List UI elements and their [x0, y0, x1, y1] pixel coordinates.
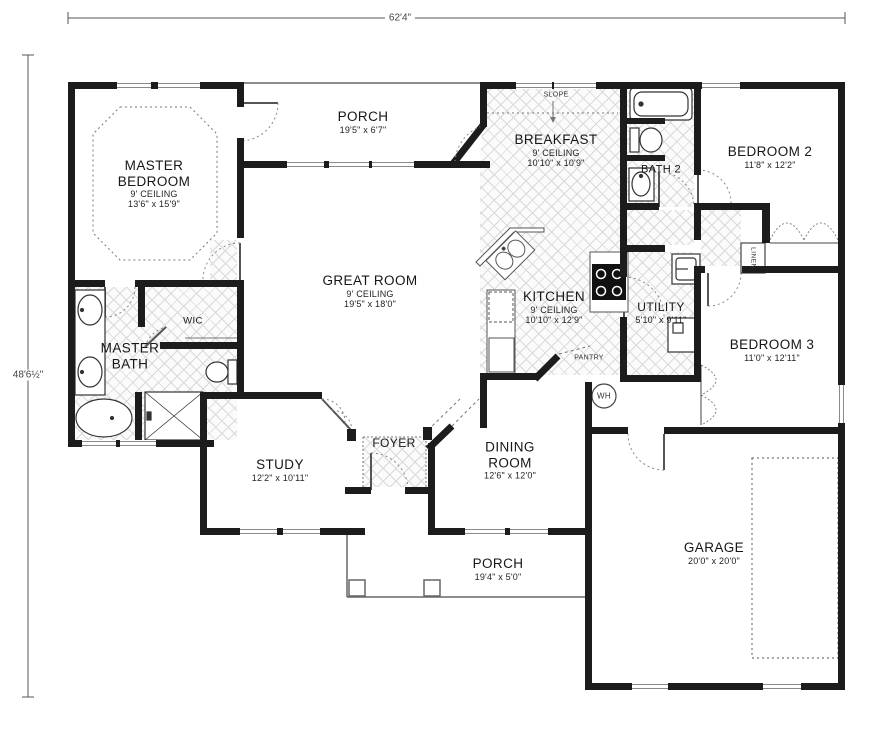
window [283, 528, 320, 535]
window [158, 82, 200, 89]
room-dims: 19'5" x 6'7" [303, 125, 423, 135]
wall-segment [135, 392, 142, 447]
room-dims: 11'8" x 12'2" [705, 160, 835, 170]
slope-line [487, 101, 618, 123]
room-label-great-room: GREAT ROOM 9' CEILING 19'5" x 18'0" [295, 273, 445, 309]
room-label-foyer: FOYER [364, 437, 424, 451]
window [329, 161, 369, 168]
wall-segment [620, 89, 627, 210]
window [554, 82, 596, 89]
window [372, 161, 414, 168]
room-label-master-bath: MASTER BATH [90, 340, 170, 371]
bath2-toilet [630, 128, 662, 152]
room-label-garage: GARAGE 20'0" x 20'0" [654, 540, 774, 566]
room-name: BEDROOM 2 [705, 144, 835, 160]
room-dims: 19'4" x 5'0" [438, 572, 558, 582]
overall-height-dimension: 48'6½" [9, 370, 47, 381]
room-label-bedroom3: BEDROOM 3 11'0" x 12'11" [707, 337, 837, 363]
wall-segment [620, 317, 627, 382]
window [632, 683, 668, 690]
room-ceiling: 9' CEILING [99, 189, 209, 199]
wh-label: WH [597, 392, 611, 401]
wall-segment [694, 85, 701, 175]
wall-segment [627, 118, 665, 124]
window [510, 528, 548, 535]
wall-segment [237, 168, 244, 238]
window [702, 82, 740, 89]
room-label-study: STUDY 12'2" x 10'11" [225, 457, 335, 483]
wall-segment [200, 392, 207, 535]
room-name: UTILITY [616, 301, 706, 315]
angled-openings [322, 346, 590, 430]
window [465, 528, 505, 535]
room-label-breakfast: BREAKFAST 9' CEILING 10'10" x 10'9" [496, 132, 616, 168]
room-name: DINING ROOM [465, 439, 555, 470]
linen-label: LINEN [750, 247, 757, 269]
room-dims: 12'6" x 12'0" [465, 470, 555, 480]
room-name: KITCHEN [499, 289, 609, 305]
window [82, 440, 116, 447]
room-name: BATH 2 [626, 164, 696, 177]
wall-segment [627, 203, 659, 210]
wall-segment [694, 210, 701, 240]
wall-segment [698, 427, 845, 434]
wall-segment [237, 82, 244, 107]
wall-segment [138, 287, 145, 327]
room-dims: 10'10" x 12'9" [499, 315, 609, 325]
wall-segment [620, 210, 627, 277]
room-dims: 10'10" x 10'9" [496, 158, 616, 168]
master-toilet [206, 360, 237, 384]
wall-segment [694, 203, 770, 210]
wall-segment [480, 373, 487, 428]
wall-segment [620, 375, 701, 382]
room-name: WIC [168, 317, 218, 328]
slope-label: SLOPE [544, 92, 569, 99]
room-label-porch-bottom: PORCH 19'4" x 5'0" [438, 556, 558, 582]
room-label-bath2: BATH 2 [626, 164, 696, 177]
wall-segment [347, 429, 356, 441]
wall-segment [68, 280, 105, 287]
wall-segment [742, 266, 845, 273]
window [120, 440, 156, 447]
room-label-porch-top: PORCH 19'5" x 6'7" [303, 109, 423, 135]
wall-segment [585, 683, 845, 690]
room-dims: 19'5" x 18'0" [295, 299, 445, 309]
window [287, 161, 324, 168]
wall-segment [423, 427, 432, 440]
room-ceiling: 9' CEILING [499, 304, 609, 314]
wall-segment [620, 245, 665, 252]
room-name: GARAGE [654, 540, 774, 556]
window [117, 82, 151, 89]
bifold-doors [701, 223, 838, 425]
room-label-wic: WIC [168, 317, 218, 328]
window [240, 528, 277, 535]
wall-segment [160, 342, 238, 349]
master-shower [145, 392, 203, 440]
wall-segment [345, 487, 371, 494]
room-label-dining: DINING ROOM 12'6" x 12'0" [465, 439, 555, 480]
wall-segment [405, 487, 432, 494]
room-name: STUDY [225, 457, 335, 473]
master-bathtub [76, 399, 132, 437]
pantry-label: PANTRY [574, 355, 604, 362]
room-name: MASTER BATH [90, 340, 170, 371]
room-dims: 20'0" x 20'0" [654, 556, 774, 566]
room-name: GREAT ROOM [295, 273, 445, 289]
room-name: PORCH [303, 109, 423, 125]
window [763, 683, 801, 690]
wall-segment [585, 382, 592, 690]
room-name: BEDROOM 3 [707, 337, 837, 353]
room-dims: 12'2" x 10'11" [225, 473, 335, 483]
room-dims: 11'0" x 12'11" [707, 353, 837, 363]
window [838, 385, 845, 423]
room-label-kitchen: KITCHEN 9' CEILING 10'10" x 12'9" [499, 289, 609, 325]
window [516, 82, 552, 89]
room-name: MASTER BEDROOM [99, 158, 209, 189]
room-name: FOYER [364, 437, 424, 451]
wall-segment [694, 266, 705, 273]
plan-lineart [0, 0, 874, 750]
room-ceiling: 9' CEILING [496, 147, 616, 157]
diagonal-walls [428, 124, 558, 449]
wall-segment [68, 82, 244, 89]
room-ceiling: 9' CEILING [295, 288, 445, 298]
room-dims: 5'10" x 9'11" [616, 315, 706, 325]
wall-segment [762, 203, 770, 243]
room-dims: 13'6" x 15'9" [99, 200, 209, 210]
bath2-bathtub [630, 88, 692, 120]
kitchen-corner-counter [476, 228, 544, 280]
floor-plan: MASTER BEDROOM 9' CEILING 13'6" x 15'9" … [0, 0, 874, 750]
wall-segment [480, 82, 487, 127]
room-label-utility: UTILITY 5'10" x 9'11" [616, 301, 706, 325]
wall-segment [592, 427, 628, 434]
wall-segment [627, 155, 665, 161]
wall-segment [68, 82, 75, 447]
wall-segment [135, 280, 244, 287]
room-label-master-bedroom: MASTER BEDROOM 9' CEILING 13'6" x 15'9" [99, 158, 209, 210]
wall-segment [200, 392, 322, 399]
room-name: BREAKFAST [496, 132, 616, 148]
wall-segment [694, 273, 701, 382]
overall-width-dimension: 62'4" [385, 13, 415, 24]
room-label-bedroom2: BEDROOM 2 11'8" x 12'2" [705, 144, 835, 170]
wall-segment [480, 373, 537, 380]
wall-segment [237, 280, 244, 399]
room-name: PORCH [438, 556, 558, 572]
